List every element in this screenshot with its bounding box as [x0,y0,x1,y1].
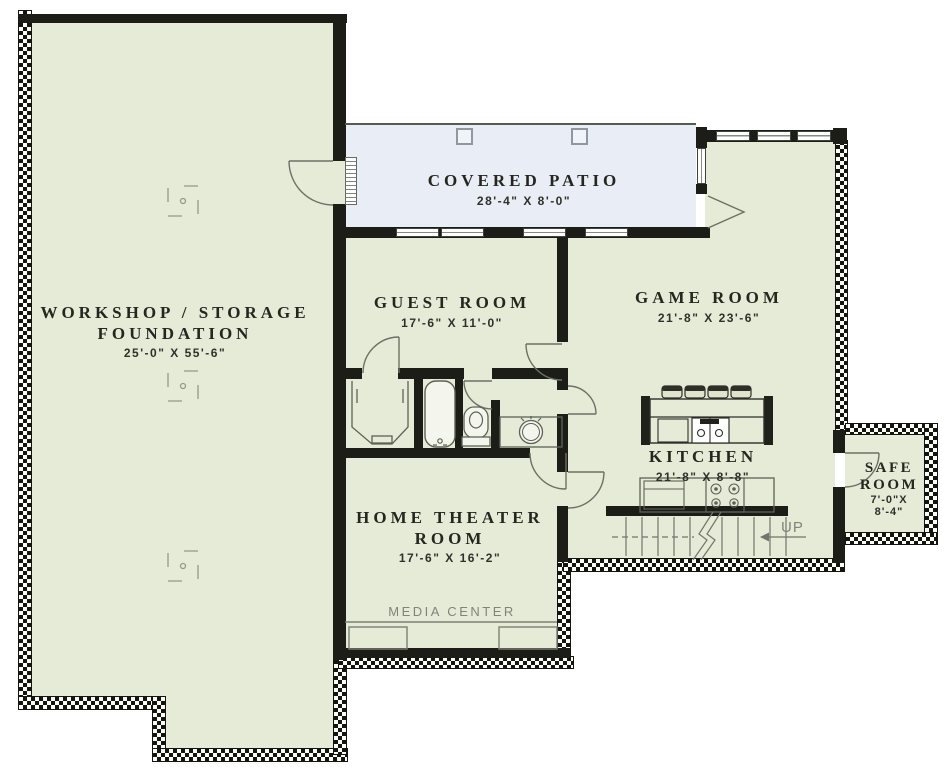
door-swing-bath-hall [568,386,596,414]
room-name: FOUNDATION [40,324,309,345]
patio-columns [457,129,587,144]
kitchen-island [641,396,773,445]
room-dimensions: 17'-6" X 11'-0" [374,316,530,330]
door-swing-gameroom-hall [526,344,562,380]
room-dimensions: 21'-8" X 23'-6" [635,311,783,325]
room-label-game-room: GAME ROOM 21'-8" X 23'-6" [635,288,783,325]
room-dimensions: 28'-4" X 8'-0" [428,194,621,208]
toilet [462,407,490,446]
room-label-home-theater: HOME THEATER ROOM 17'-6" X 16'-2" [356,508,544,565]
pier-markers [168,186,198,581]
fixtures-layer [0,0,950,774]
room-label-kitchen: KITCHEN 21'-8" X 8'-8" [649,447,757,484]
room-dimensions: 25'-0" X 55'-6" [40,346,309,360]
room-name: KITCHEN [649,447,757,468]
refrigerator [644,481,684,509]
media-center-cabinet [345,622,557,649]
room-name: SAFE [860,460,918,477]
stair-break-line [693,512,721,560]
media-center-label: MEDIA CENTER [388,604,516,619]
room-name: GUEST ROOM [374,293,530,314]
room-dimensions: 21'-8" X 8'-8" [649,470,757,484]
door-swing-theater [530,453,566,489]
vanity-sink [500,416,562,447]
door-swing-theater-hall [568,472,604,508]
closet [352,381,408,444]
room-label-workshop: WORKSHOP / STORAGE FOUNDATION 25'-0" X 5… [40,303,309,360]
room-label-guest-room: GUEST ROOM 17'-6" X 11'-0" [374,293,530,330]
room-dimensions: 8'-4" [860,506,918,518]
door-swing-workshop-patio [289,161,333,205]
room-dimensions: 17'-6" X 16'-2" [356,551,544,565]
floor-plan: WORKSHOP / STORAGE FOUNDATION 25'-0" X 5… [0,0,950,774]
room-name: COVERED PATIO [428,171,621,192]
bathtub [425,381,455,447]
door-swing-guest-room [363,337,399,373]
room-name: WORKSHOP / STORAGE [40,303,309,324]
bar-stools [662,386,751,398]
room-name: ROOM [860,477,918,494]
room-name: GAME ROOM [635,288,783,309]
room-label-covered-patio: COVERED PATIO 28'-4" X 8'-0" [428,171,621,208]
door-swing-toilet [464,381,492,409]
staircase [612,512,806,560]
room-label-safe-room: SAFE ROOM 7'-0"X 8'-4" [860,460,918,518]
dishwasher [658,419,688,442]
door-swing-patio-gameroom [708,196,744,228]
room-name: HOME THEATER [356,508,544,529]
stairs-up-label: UP [781,519,804,536]
room-name: ROOM [356,529,544,550]
room-dimensions: 7'-0"X [860,494,918,506]
